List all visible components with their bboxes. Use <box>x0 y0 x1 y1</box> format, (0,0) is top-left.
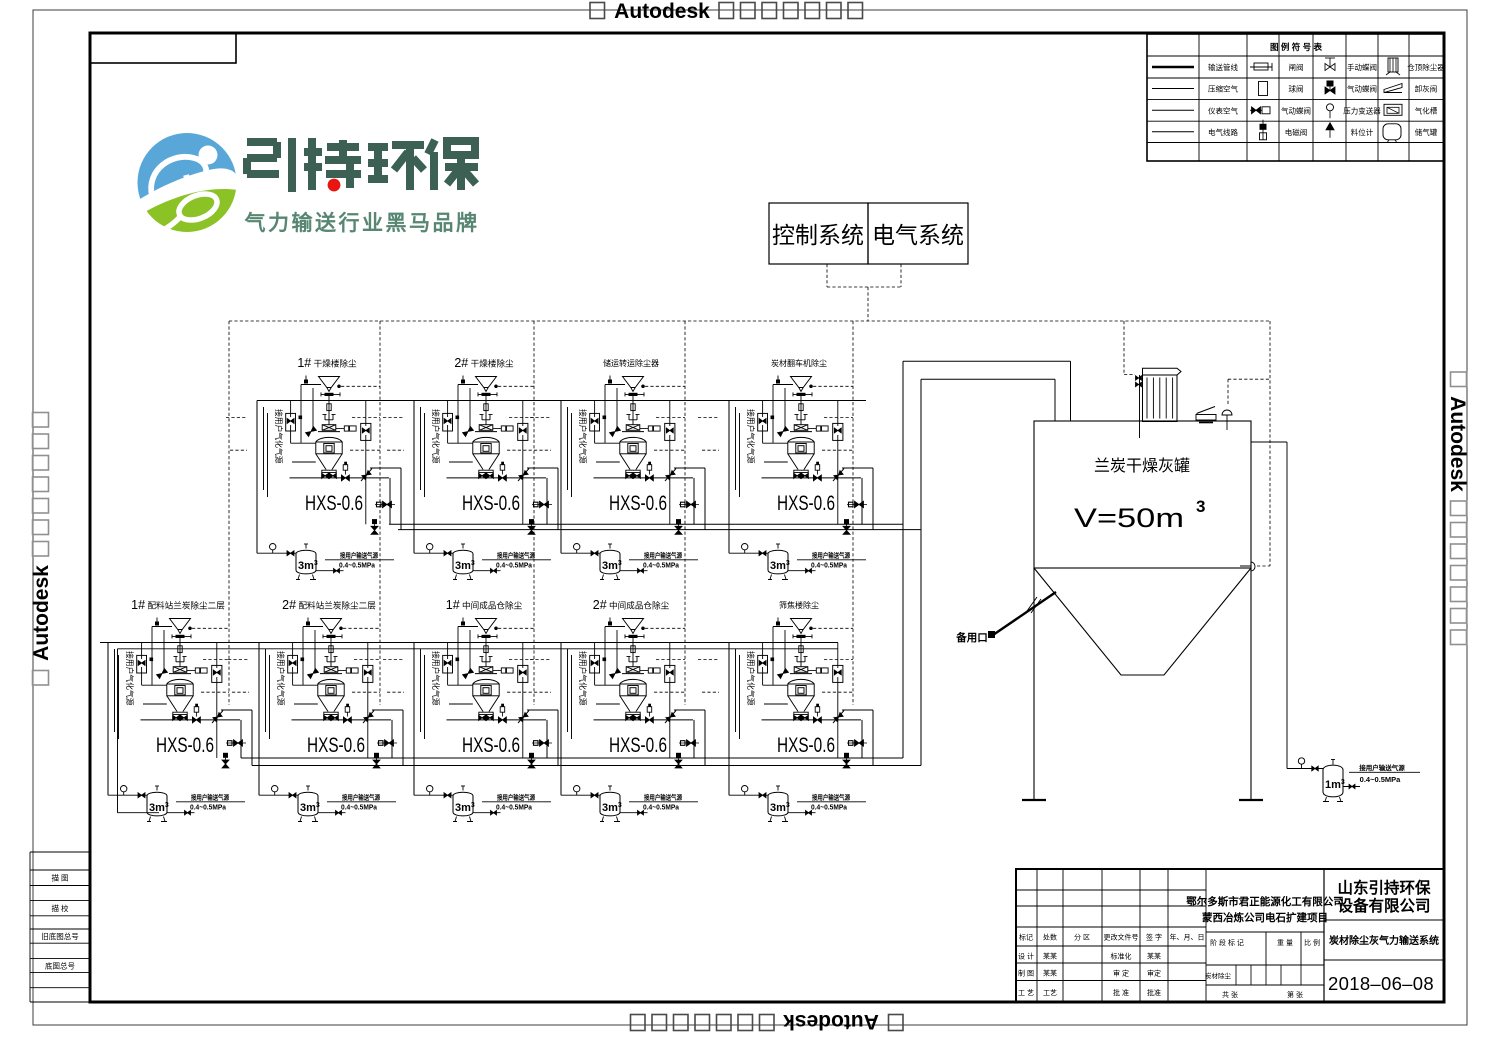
svg-text:标记: 标记 <box>1019 933 1033 942</box>
svg-text:图 例 符 号 表: 图 例 符 号 表 <box>1270 42 1322 52</box>
svg-text:描 校: 描 校 <box>51 903 69 913</box>
svg-text:接用户气化气源: 接用户气化气源 <box>746 651 756 706</box>
svg-text:备用口: 备用口 <box>955 631 988 644</box>
svg-text:接用户输送气源: 接用户输送气源 <box>644 793 682 802</box>
svg-text:接用户气化气源: 接用户气化气源 <box>578 651 588 706</box>
svg-text:共 张: 共 张 <box>1222 990 1238 999</box>
svg-text:输送管线: 输送管线 <box>1208 62 1238 72</box>
svg-text:审 定: 审 定 <box>1113 969 1129 978</box>
svg-text:球阀: 球阀 <box>1289 84 1304 94</box>
svg-text:0.4~0.5MPa: 0.4~0.5MPa <box>811 803 848 812</box>
svg-text:气动蝶阀: 气动蝶阀 <box>1281 105 1311 115</box>
svg-text:气化槽: 气化槽 <box>1415 105 1438 115</box>
svg-text:某某: 某某 <box>1043 953 1057 961</box>
svg-text:接用户输送气源: 接用户输送气源 <box>812 551 850 560</box>
svg-text:批准: 批准 <box>1147 988 1161 997</box>
svg-text:炭材除尘: 炭材除尘 <box>1205 971 1232 980</box>
svg-text:接用户气化气源: 接用户气化气源 <box>276 651 286 706</box>
svg-text:接用户气化气源: 接用户气化气源 <box>431 651 441 706</box>
svg-text:HXS-0.6: HXS-0.6 <box>777 492 835 515</box>
svg-text:接用户输送气源: 接用户输送气源 <box>340 551 378 560</box>
svg-text:接用户气化气源: 接用户气化气源 <box>125 651 135 706</box>
svg-text:重 量: 重 量 <box>1277 939 1293 947</box>
svg-text:接用户输送气源: 接用户输送气源 <box>812 793 850 802</box>
svg-text:电气线路: 电气线路 <box>1208 127 1238 137</box>
svg-text:HXS-0.6: HXS-0.6 <box>462 734 520 757</box>
svg-text:某某: 某某 <box>1043 970 1057 978</box>
svg-text:储运转运除尘器: 储运转运除尘器 <box>603 358 659 368</box>
svg-text:控制系统: 控制系统 <box>772 222 864 248</box>
svg-text:鄂尔多斯市君正能源化工有限公司: 鄂尔多斯市君正能源化工有限公司 <box>1186 895 1344 908</box>
svg-text:接用户输送气源: 接用户输送气源 <box>497 551 535 560</box>
svg-text:签 字: 签 字 <box>1146 933 1162 942</box>
svg-text:0.4~0.5MPa: 0.4~0.5MPa <box>190 803 227 812</box>
svg-text:炭材翻车机除尘: 炭材翻车机除尘 <box>771 358 827 368</box>
svg-text:2# 干燥楼除尘: 2# 干燥楼除尘 <box>454 356 514 370</box>
svg-text:第 张: 第 张 <box>1287 990 1303 999</box>
svg-text:闸阀: 闸阀 <box>1289 63 1304 72</box>
svg-text:底图总号: 底图总号 <box>45 961 75 971</box>
svg-text:接用户气化气源: 接用户气化气源 <box>578 409 588 464</box>
svg-text:比 例: 比 例 <box>1304 938 1320 947</box>
svg-text:山东引持环保: 山东引持环保 <box>1337 878 1431 897</box>
svg-text:接用户输送气源: 接用户输送气源 <box>191 793 229 802</box>
svg-text:3: 3 <box>1196 497 1205 516</box>
svg-text:更改文件号: 更改文件号 <box>1104 933 1139 942</box>
svg-text:旧底图总号: 旧底图总号 <box>41 931 79 941</box>
svg-text:储气罐: 储气罐 <box>1415 127 1438 137</box>
svg-text:电磁阀: 电磁阀 <box>1285 127 1308 137</box>
svg-text:气力输送行业黑马品牌: 气力输送行业黑马品牌 <box>244 211 480 235</box>
svg-text:压缩空气: 压缩空气 <box>1208 84 1238 94</box>
svg-text:工艺: 工艺 <box>1043 989 1057 997</box>
svg-text:1# 中间成品仓除尘: 1# 中间成品仓除尘 <box>446 598 523 612</box>
svg-text:0.4~0.5MPa: 0.4~0.5MPa <box>1360 775 1401 784</box>
svg-text:设 计: 设 计 <box>1018 952 1034 961</box>
svg-text:HXS-0.6: HXS-0.6 <box>156 734 214 757</box>
svg-text:Autodesk: Autodesk <box>783 1010 879 1033</box>
svg-text:年、月、日: 年、月、日 <box>1170 933 1205 942</box>
svg-text:设备有限公司: 设备有限公司 <box>1337 896 1430 915</box>
svg-text:某某: 某某 <box>1147 953 1161 961</box>
svg-text:Autodesk: Autodesk <box>30 565 53 661</box>
svg-text:压力变送器: 压力变送器 <box>1343 105 1381 115</box>
svg-text:HXS-0.6: HXS-0.6 <box>609 734 667 757</box>
svg-text:处数: 处数 <box>1043 933 1057 942</box>
svg-text:1# 配料站兰炭除尘二层: 1# 配料站兰炭除尘二层 <box>131 598 225 612</box>
svg-text:接用户气化气源: 接用户气化气源 <box>431 409 441 464</box>
svg-text:V=50m: V=50m <box>1074 503 1184 533</box>
svg-text:仪表空气: 仪表空气 <box>1208 105 1238 115</box>
svg-text:HXS-0.6: HXS-0.6 <box>777 734 835 757</box>
svg-text:接用户输送气源: 接用户输送气源 <box>342 793 380 802</box>
svg-text:1# 干燥楼除尘: 1# 干燥楼除尘 <box>297 356 357 370</box>
svg-text:炭材除尘灰气力输送系统: 炭材除尘灰气力输送系统 <box>1329 934 1439 947</box>
svg-text:HXS-0.6: HXS-0.6 <box>462 492 520 515</box>
svg-text:0.4~0.5MPa: 0.4~0.5MPa <box>643 561 680 570</box>
svg-text:阶 段 标 记: 阶 段 标 记 <box>1210 938 1244 947</box>
svg-text:HXS-0.6: HXS-0.6 <box>305 492 363 515</box>
svg-text:接用户气化气源: 接用户气化气源 <box>746 409 756 464</box>
svg-text:0.4~0.5MPa: 0.4~0.5MPa <box>496 561 533 570</box>
svg-text:批 准: 批 准 <box>1113 988 1129 997</box>
svg-text:接用户输送气源: 接用户输送气源 <box>1359 763 1405 772</box>
svg-text:Autodesk: Autodesk <box>614 0 710 23</box>
svg-text:0.4~0.5MPa: 0.4~0.5MPa <box>341 803 378 812</box>
svg-text:0.4~0.5MPa: 0.4~0.5MPa <box>643 803 680 812</box>
svg-text:分 区: 分 区 <box>1074 933 1090 942</box>
svg-text:2018–06–08: 2018–06–08 <box>1328 973 1434 994</box>
svg-text:Autodesk: Autodesk <box>1446 396 1469 492</box>
svg-text:HXS-0.6: HXS-0.6 <box>307 734 365 757</box>
svg-text:蒙西冶炼公司电石扩建项目: 蒙西冶炼公司电石扩建项目 <box>1202 911 1328 924</box>
svg-text:兰炭干燥灰罐: 兰炭干燥灰罐 <box>1094 457 1190 475</box>
svg-text:0.4~0.5MPa: 0.4~0.5MPa <box>339 561 376 570</box>
svg-text:手动蝶阀: 手动蝶阀 <box>1347 62 1377 72</box>
svg-text:标准化: 标准化 <box>1111 952 1132 961</box>
svg-text:2# 配料站兰炭除尘二层: 2# 配料站兰炭除尘二层 <box>282 598 376 612</box>
svg-text:气动蝶阀: 气动蝶阀 <box>1347 84 1377 94</box>
svg-text:筛焦楼除尘: 筛焦楼除尘 <box>779 600 819 610</box>
svg-text:仓顶除尘器: 仓顶除尘器 <box>1407 62 1445 72</box>
svg-text:HXS-0.6: HXS-0.6 <box>609 492 667 515</box>
svg-text:工 艺: 工 艺 <box>1018 989 1034 997</box>
svg-text:审定: 审定 <box>1147 969 1161 978</box>
svg-text:2# 中间成品仓除尘: 2# 中间成品仓除尘 <box>593 598 670 612</box>
svg-text:0.4~0.5MPa: 0.4~0.5MPa <box>496 803 533 812</box>
svg-text:接用户气化气源: 接用户气化气源 <box>274 409 284 464</box>
svg-text:接用户输送气源: 接用户输送气源 <box>644 551 682 560</box>
svg-text:卸灰阀: 卸灰阀 <box>1415 84 1438 94</box>
svg-text:料位计: 料位计 <box>1351 127 1374 137</box>
svg-text:0.4~0.5MPa: 0.4~0.5MPa <box>811 561 848 570</box>
svg-text:制 图: 制 图 <box>1018 969 1034 978</box>
svg-text:描 图: 描 图 <box>51 873 68 883</box>
svg-text:电气系统: 电气系统 <box>872 222 964 248</box>
svg-text:接用户输送气源: 接用户输送气源 <box>497 793 535 802</box>
